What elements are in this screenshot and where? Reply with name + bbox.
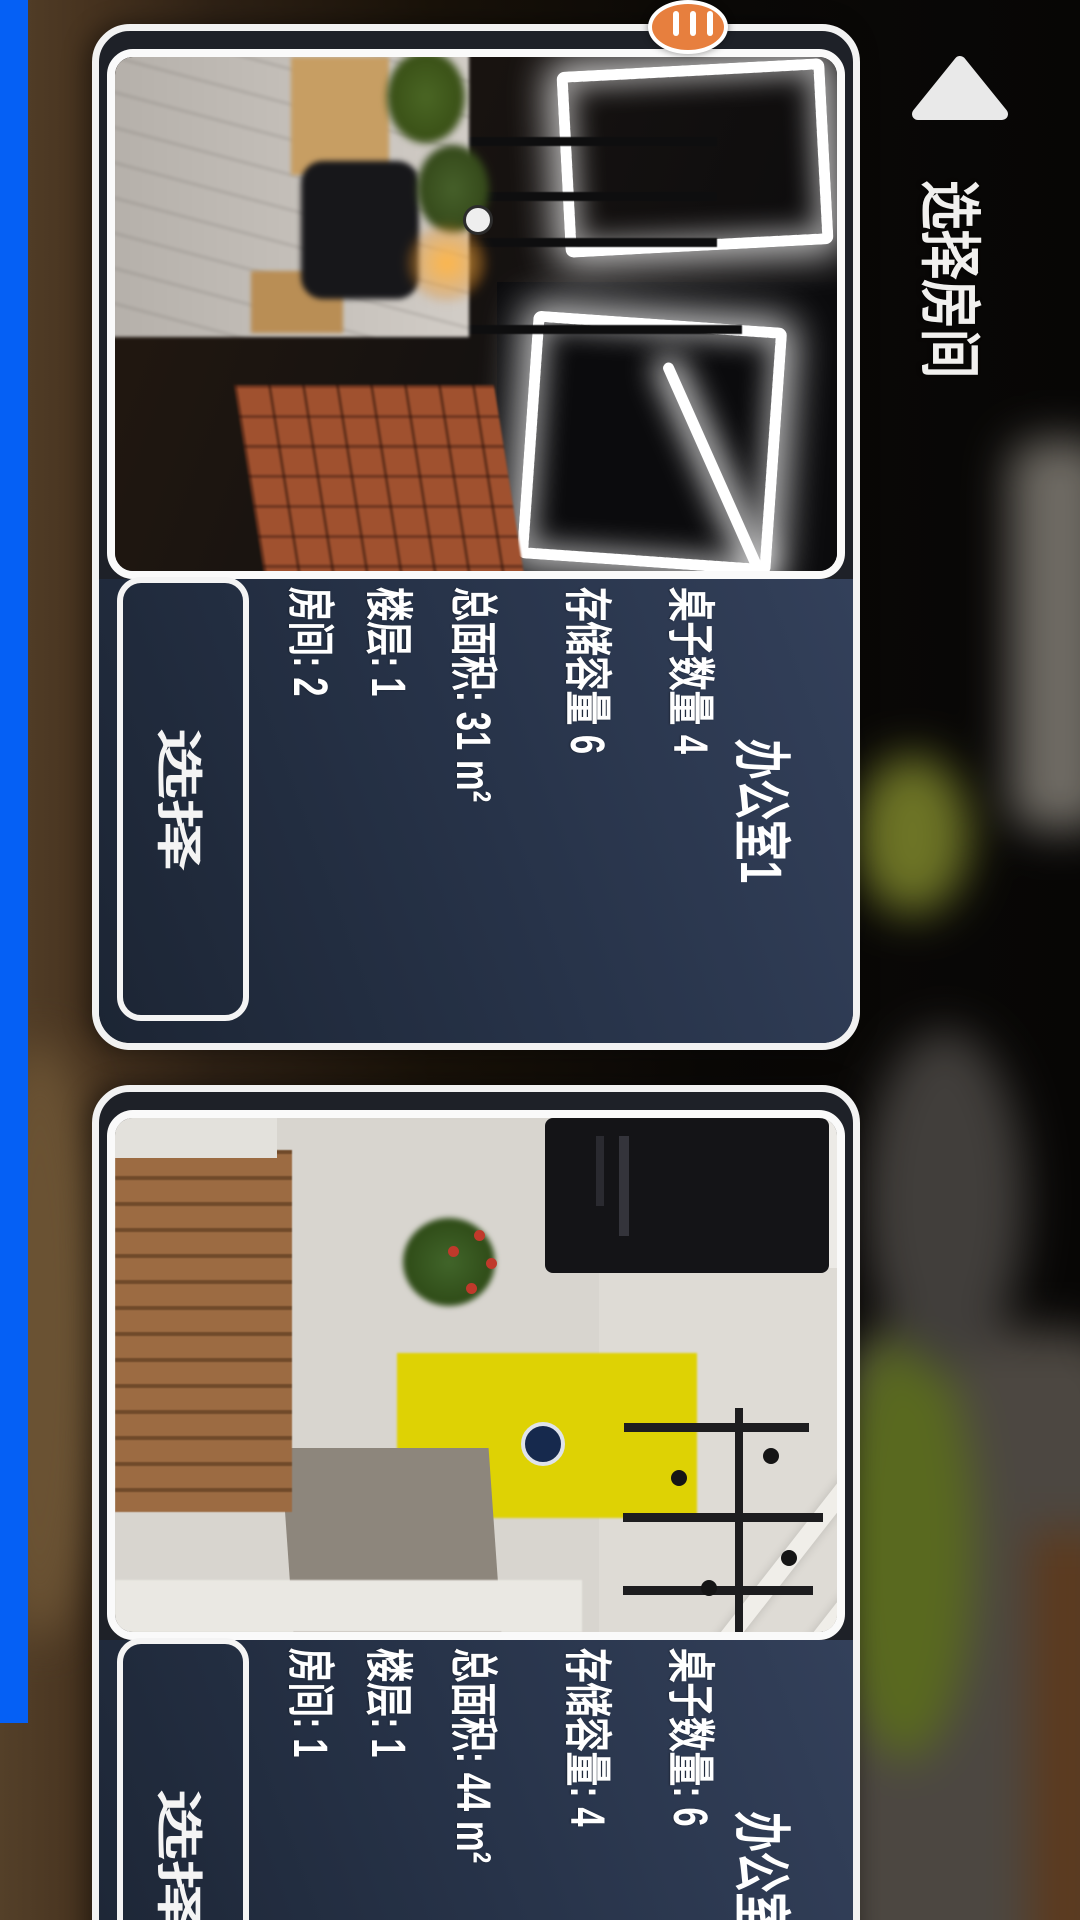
room-card-2: 办公室 桌子数量: 6 存储容量: 4 总面积: 44 m² 楼层: 1 房间:… — [92, 1085, 860, 1920]
photo-wall-clock — [463, 205, 493, 235]
grip-lines-icon — [690, 11, 696, 36]
photo-rack-knob — [671, 1470, 687, 1486]
photo-white-floor — [115, 1118, 277, 1158]
stat-room: 房间: 2 — [280, 587, 350, 696]
stat-room: 房间: 1 — [280, 1648, 350, 1757]
select-button-label: 选择 — [149, 728, 217, 871]
room-title: 办公室 — [724, 1710, 808, 1920]
stat-storage-capacity: 存储容量 6 — [557, 587, 627, 754]
room-photo-frame — [107, 1110, 845, 1640]
room-photo-office1 — [115, 57, 837, 571]
stat-total-area: 总面积: 44 m² — [443, 1648, 513, 1863]
select-button[interactable]: 选择 — [117, 577, 249, 1021]
photo-brick-floor — [234, 385, 524, 575]
stat-floor: 楼层: 1 — [358, 1648, 428, 1757]
photo-red-flower — [448, 1246, 459, 1257]
photo-white-desk — [115, 1580, 582, 1632]
photo-black-machine — [545, 1118, 829, 1273]
photo-red-flower — [466, 1283, 477, 1294]
photo-red-flower — [474, 1230, 485, 1241]
scene-pillar — [1010, 440, 1080, 830]
neon-square-light — [517, 310, 788, 575]
photo-lamp-glow — [407, 225, 487, 301]
room-photo-frame — [107, 49, 845, 579]
drawer-handle-button[interactable] — [648, 0, 728, 54]
grip-lines-icon — [673, 11, 679, 36]
photo-wood-slat-wall — [115, 1150, 292, 1512]
room-card-1: 办公室1 桌子数量 4 存储容量 6 总面积: 31 m² 楼层: 1 房间: … — [92, 24, 860, 1050]
grip-lines-icon — [707, 11, 713, 36]
photo-gym-rack — [624, 1423, 809, 1432]
game-stage: 选择房间 — [0, 0, 1080, 1920]
machine-slot — [619, 1136, 629, 1236]
photo-rack-knob — [701, 1580, 717, 1596]
photo-red-flower — [486, 1258, 497, 1269]
neon-square-light — [556, 58, 833, 258]
scene-gray-furniture — [865, 1030, 1025, 1370]
scene-small-plant — [855, 755, 970, 915]
photo-office-chair — [301, 161, 419, 299]
photo-rack-knob — [763, 1448, 779, 1464]
machine-slot — [596, 1136, 604, 1206]
page-title: 选择房间 — [910, 180, 1000, 378]
scene-door-frame — [1030, 1530, 1080, 1920]
room-photo-office2 — [115, 1118, 837, 1632]
photo-wood-desk — [291, 57, 389, 175]
photo-rack-knob — [781, 1550, 797, 1566]
room-title: 办公室1 — [724, 649, 808, 974]
select-button-label: 选择 — [149, 1789, 217, 1920]
photo-plant — [387, 51, 465, 143]
photo-gym-rack — [623, 1513, 823, 1522]
photo-gym-rack-bar — [735, 1408, 743, 1632]
photo-wall-logo — [521, 1422, 565, 1466]
photo-gym-rack — [623, 1586, 813, 1595]
stat-storage-capacity: 存储容量: 4 — [557, 1648, 627, 1827]
progress-bar — [0, 0, 28, 1723]
stat-desk-count: 桌子数量: 6 — [660, 1648, 730, 1827]
select-button[interactable]: 选择 — [117, 1638, 249, 1920]
stat-floor: 楼层: 1 — [358, 587, 428, 696]
stat-total-area: 总面积: 31 m² — [443, 587, 513, 802]
stat-desk-count: 桌子数量 4 — [660, 587, 730, 754]
triangle-arrow-icon[interactable] — [908, 54, 1012, 122]
